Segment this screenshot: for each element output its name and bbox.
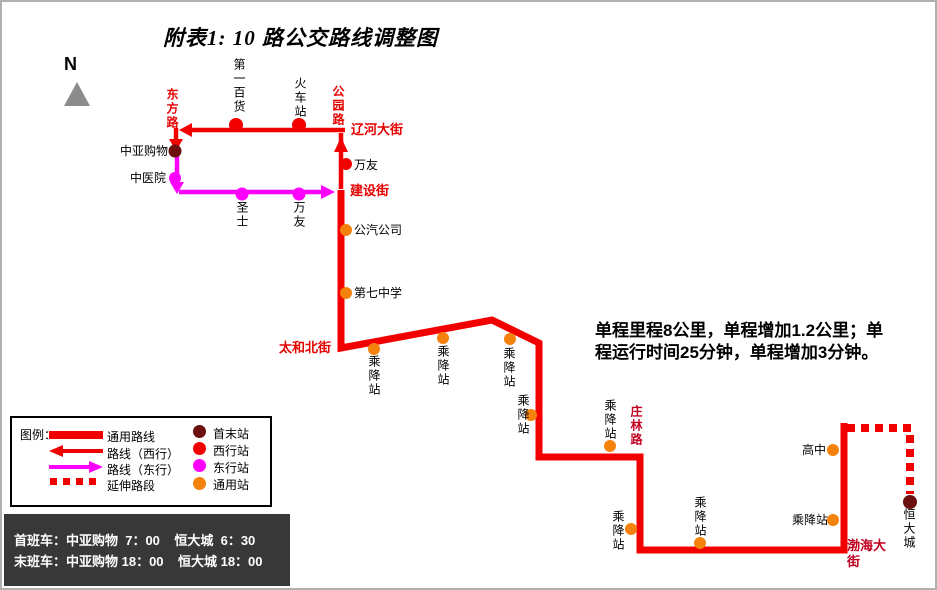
legend-box: 图例： 通用路线 路线（西行） 路线（东行） 延伸路段 首末站 西行站 东行站 … [10,416,272,507]
note-line-1: 单程里程8公里，单程增加1.2公里；单 [595,320,925,342]
terminal-dot-hengda [903,495,917,509]
legend-common-station-dot [193,477,206,490]
common-station-dot-stop7 [694,537,706,549]
common-station-dot-stop1 [368,343,380,355]
station-label-high-school: 高中 [802,443,826,457]
common-station-dot-stop5 [604,440,616,452]
legend-common-route-swatch [48,430,104,440]
trunk-route-line [341,190,844,550]
station-label-stop5: 乘降站 [603,399,617,441]
legend-label-east-station: 东行站 [213,459,249,476]
terminal-dot-zhongya [169,145,182,158]
compass-north-icon [64,82,90,106]
east-station-dot-hospital [169,172,181,184]
station-label-hengda-city: 恒大城 [902,508,916,550]
legend-label-common-route: 通用路线 [107,428,155,445]
legend-westbound-arrow-icon [48,445,104,455]
schedule-box: 首班车：中亚购物 7：00 恒大城 6：30 末班车：中亚购物 18：00 恒大… [4,514,290,586]
station-label-stop6: 乘降站 [611,510,625,552]
legend-label-terminal-station: 首末站 [213,425,249,442]
legend-label-common-station: 通用站 [213,476,249,493]
legend-west-station-dot [193,442,206,455]
legend-label-westbound-route: 路线（西行） [107,445,179,462]
station-label-railway-station: 火车站 [293,77,307,119]
station-label-stop3: 乘降站 [502,347,516,389]
station-label-zhongya-shopping: 中亚购物 [116,144,168,158]
legend-extension-swatch [50,477,106,487]
westbound-arrow-up-icon [334,137,348,152]
station-label-stop7: 乘降站 [693,496,707,538]
common-station-dot-stop6 [625,523,637,535]
west-station-dot-railway [292,118,306,132]
legend-label-west-station: 西行站 [213,442,249,459]
common-station-dot-high-school [827,444,839,456]
station-label-no7-middle-school: 第七中学 [354,286,402,300]
legend-label-extension: 延伸路段 [107,477,155,494]
schedule-last-bus: 末班车：中亚购物 18：00 恒大城 18：00 [14,551,263,570]
station-label-wanyou-east: 万友 [292,201,306,229]
station-label-shengshi: 圣士 [235,201,249,229]
legend-terminal-dot [193,425,206,438]
street-label-jianshe: 建设街 [350,184,389,198]
common-station-dot-stop3 [504,333,516,345]
east-station-dot-shengshi [236,188,249,201]
station-label-stop8: 乘降站 [792,513,828,527]
common-station-dot-stop8 [827,514,839,526]
eastbound-arrow-right-icon [321,185,335,199]
westbound-arrow-left-icon [179,123,192,137]
street-label-zhuanglin: 庄林路 [629,405,643,447]
compass-north-label: N [64,54,77,75]
note-text: 单程里程8公里，单程增加1.2公里；单 程运行时间25分钟，单程增加3分钟。 [595,320,925,364]
station-label-bus-company: 公汽公司 [354,223,402,237]
street-label-taihebei: 太和北街 [279,341,331,355]
legend-east-station-dot [193,459,206,472]
east-station-dot-wanyou [293,188,306,201]
route-adjustment-diagram: 渤海大街 [0,0,937,590]
common-station-dot-stop2 [437,332,449,344]
station-label-stop4: 乘降站 [516,394,530,436]
station-label-first-department-store: 第一百货 [232,58,246,114]
street-label-dongfang: 东方路 [165,88,179,130]
west-station-dot-first-store [229,118,243,132]
street-label-liaohe: 辽河大街 [351,123,403,137]
common-station-dot-no7-school [340,287,352,299]
legend-eastbound-arrow-icon [48,461,104,471]
station-label-stop1: 乘降站 [367,355,381,397]
station-label-stop2: 乘降站 [436,345,450,387]
note-line-2: 程运行时间25分钟，单程增加3分钟。 [595,342,925,364]
common-station-dot-bus-company [340,224,352,236]
schedule-first-bus: 首班车：中亚购物 7：00 恒大城 6：30 [14,530,255,549]
station-label-wanyou-west: 万友 [354,158,378,172]
page-title: 附表1: 10 路公交路线调整图 [163,22,438,52]
street-label-gongyuan: 公园路 [331,85,345,127]
legend-label-eastbound-route: 路线（东行） [107,461,179,478]
west-station-dot-wanyou [340,158,352,170]
station-label-zhongyi-hospital: 中医院 [116,171,166,185]
